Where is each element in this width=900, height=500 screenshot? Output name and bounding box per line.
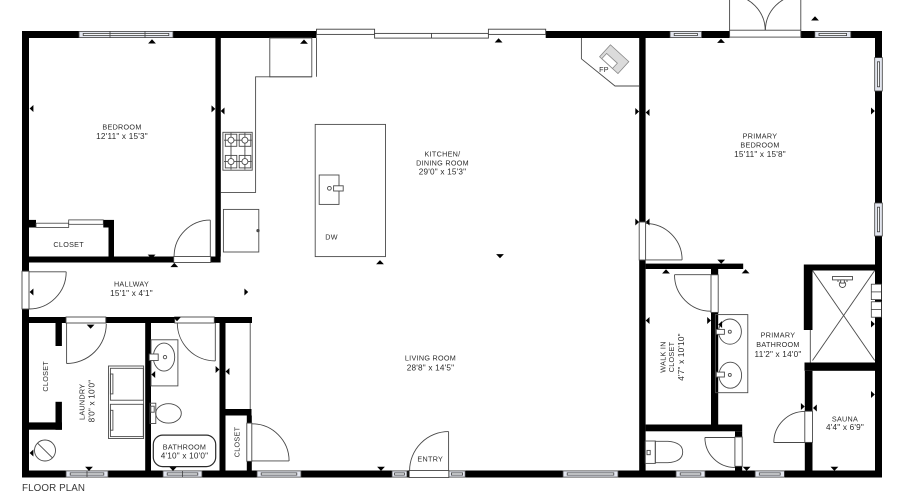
svg-text:15'1" x 4'1": 15'1" x 4'1" xyxy=(110,289,153,298)
svg-text:FP: FP xyxy=(599,65,609,74)
svg-text:KITCHEN/: KITCHEN/ xyxy=(425,149,461,158)
svg-text:29'0" x 15'3": 29'0" x 15'3" xyxy=(419,168,467,177)
svg-text:11'2" x 14'0": 11'2" x 14'0" xyxy=(755,350,802,359)
svg-text:CLOSET: CLOSET xyxy=(232,426,241,457)
svg-text:PRIMARY: PRIMARY xyxy=(743,131,778,140)
svg-text:DINING ROOM: DINING ROOM xyxy=(416,158,469,167)
svg-text:BATHROOM: BATHROOM xyxy=(163,442,206,451)
svg-text:28'8" x 14'5": 28'8" x 14'5" xyxy=(407,364,455,373)
svg-text:BEDROOM: BEDROOM xyxy=(740,141,779,150)
svg-text:DW: DW xyxy=(325,232,338,241)
svg-text:4'4" x 6'9": 4'4" x 6'9" xyxy=(826,423,864,432)
svg-text:LAUNDRY: LAUNDRY xyxy=(77,384,86,420)
svg-text:12'11" x 15'3": 12'11" x 15'3" xyxy=(96,132,148,141)
svg-text:LIVING ROOM: LIVING ROOM xyxy=(405,353,456,362)
svg-text:4'7" x 10'10": 4'7" x 10'10" xyxy=(677,333,686,381)
svg-text:PRIMARY: PRIMARY xyxy=(761,330,796,339)
svg-text:BEDROOM: BEDROOM xyxy=(102,122,141,131)
svg-text:CLOSET: CLOSET xyxy=(41,361,50,392)
svg-text:ENTRY: ENTRY xyxy=(417,454,443,463)
svg-text:FLOOR PLAN: FLOOR PLAN xyxy=(22,483,85,494)
svg-text:8'0" x 10'0": 8'0" x 10'0" xyxy=(88,380,97,423)
svg-text:HALLWAY: HALLWAY xyxy=(114,280,149,289)
svg-text:4'10" x 10'0": 4'10" x 10'0" xyxy=(161,451,209,460)
svg-text:CLOSET: CLOSET xyxy=(53,240,84,249)
svg-text:BATHROOM: BATHROOM xyxy=(756,340,799,349)
svg-text:15'11" x 15'8": 15'11" x 15'8" xyxy=(734,150,786,159)
svg-text:CLOSET: CLOSET xyxy=(667,341,676,372)
